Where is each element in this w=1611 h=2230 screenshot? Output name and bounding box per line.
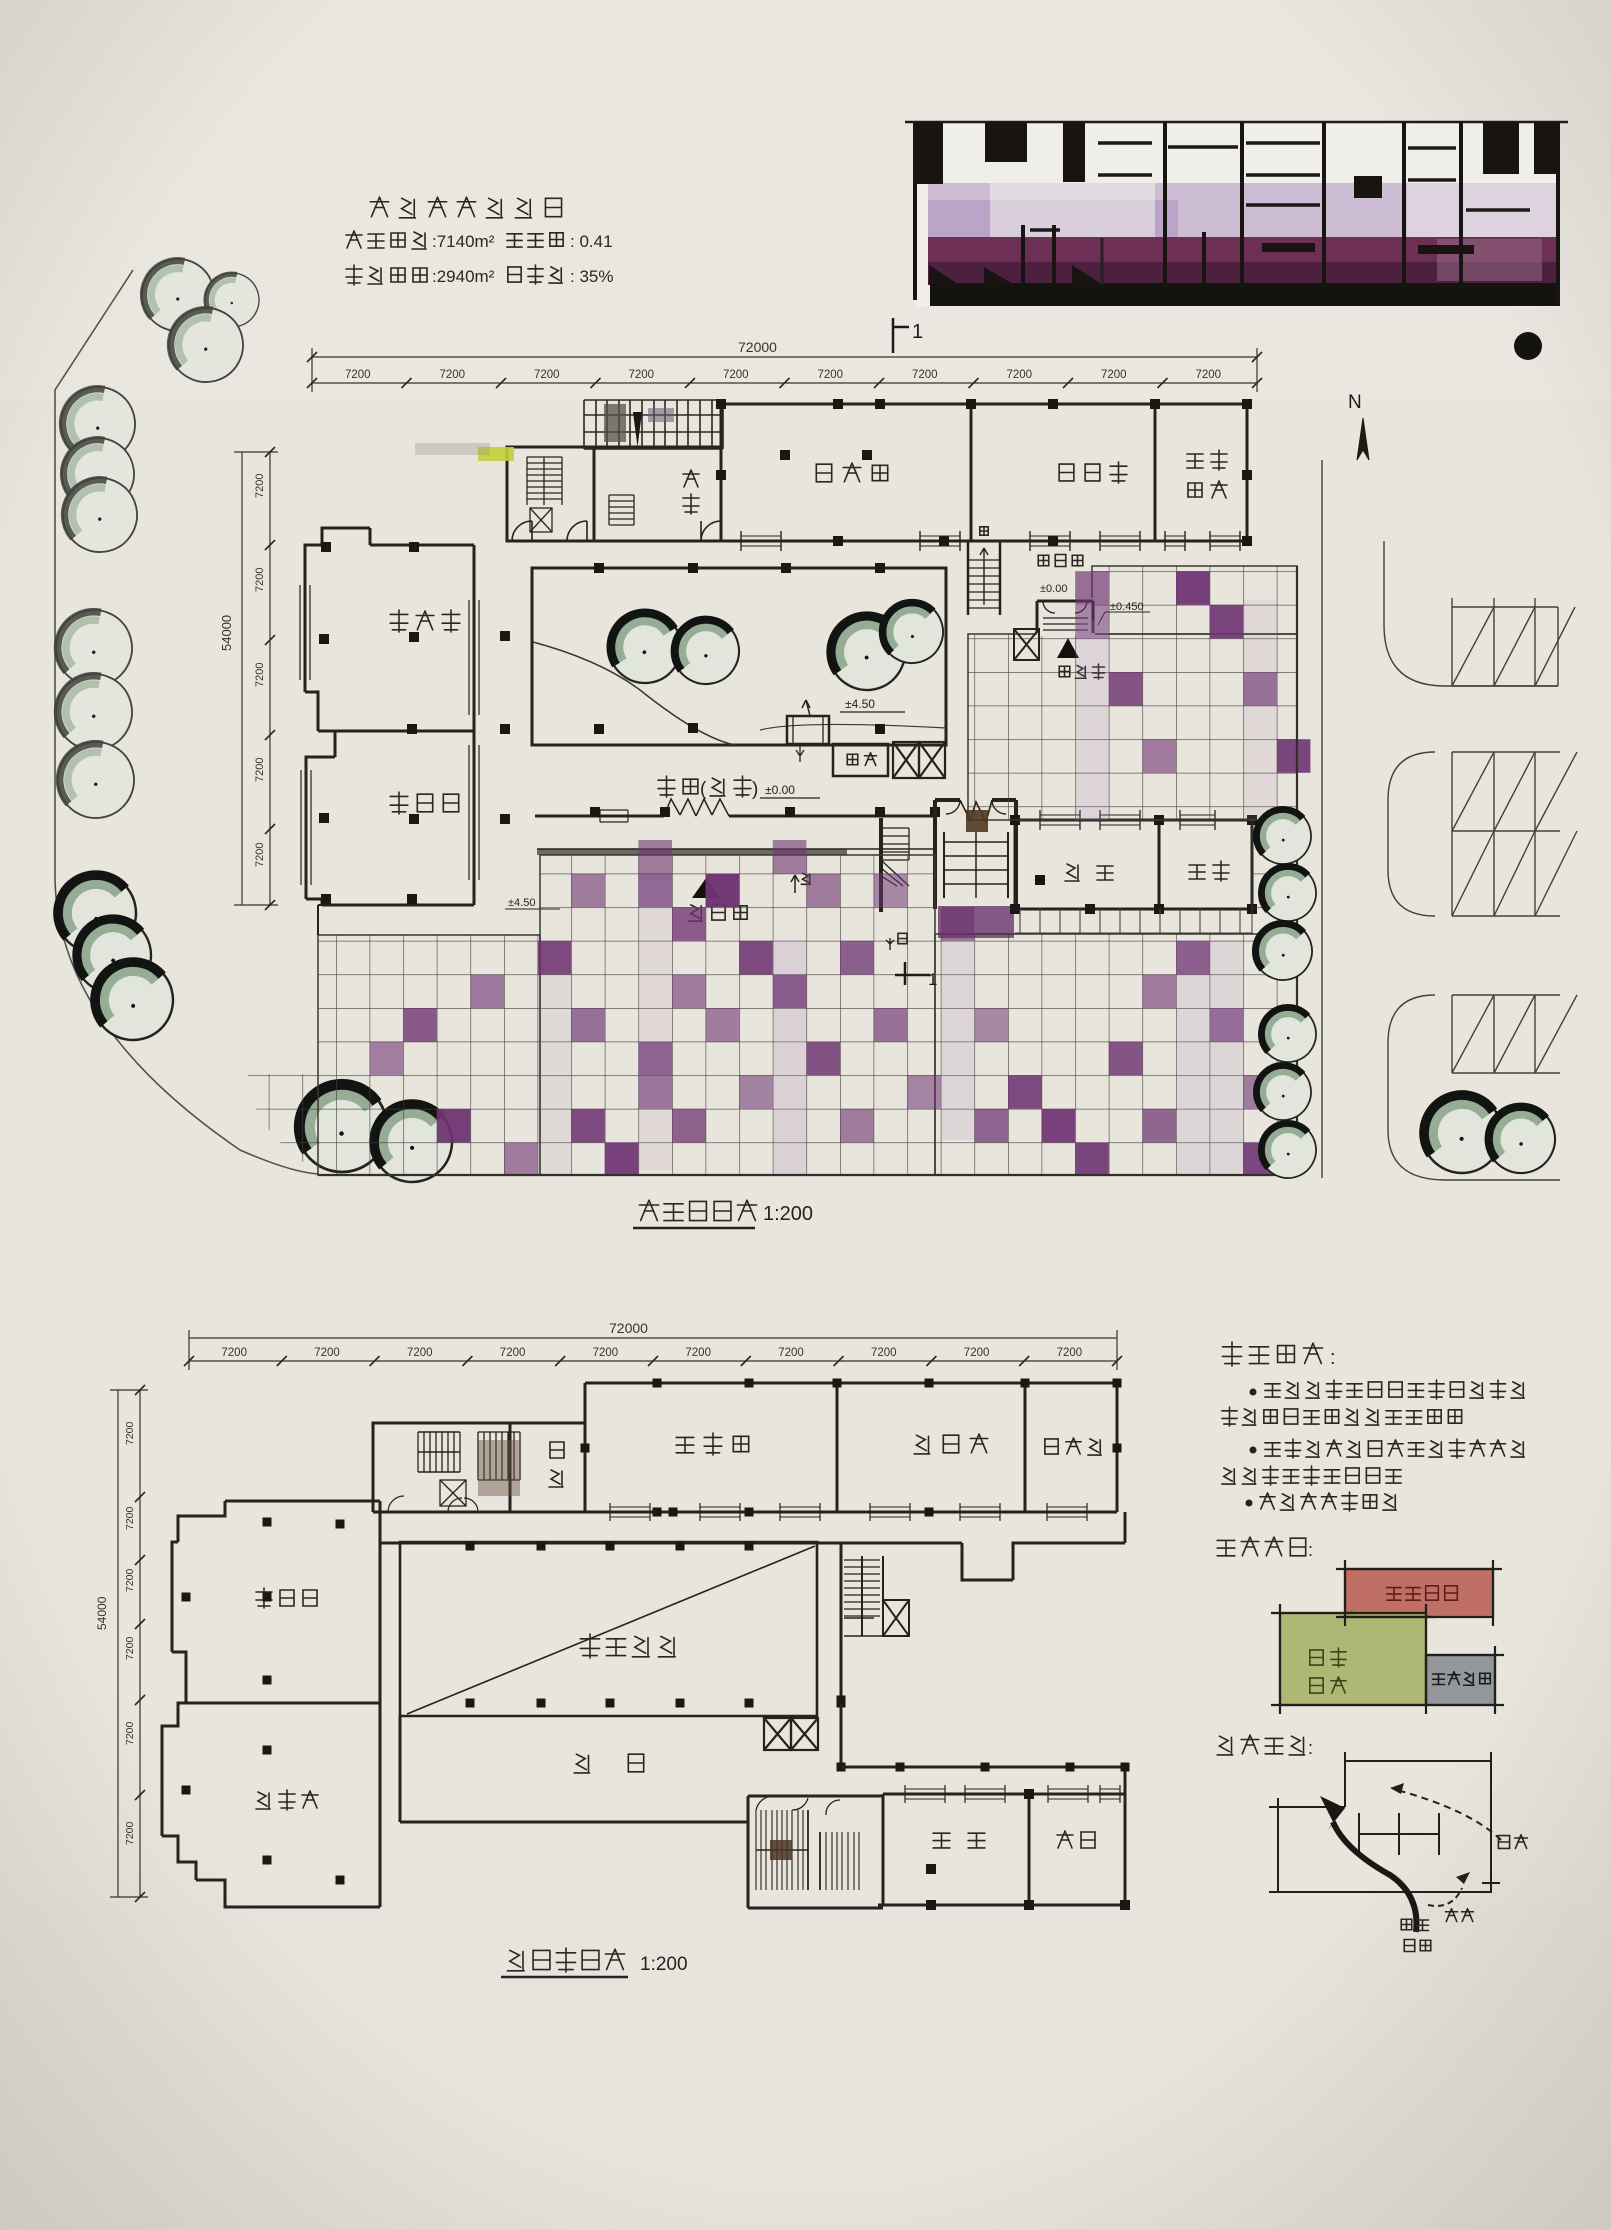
svg-text:7200: 7200 bbox=[1196, 369, 1222, 381]
svg-text:7200: 7200 bbox=[124, 1506, 136, 1530]
svg-text:7200: 7200 bbox=[124, 1821, 136, 1845]
svg-text:7200: 7200 bbox=[818, 369, 844, 381]
svg-text:7200: 7200 bbox=[1101, 369, 1127, 381]
svg-text:7200: 7200 bbox=[254, 843, 266, 867]
svg-text:7200: 7200 bbox=[685, 1347, 711, 1359]
svg-text:7200: 7200 bbox=[440, 369, 466, 381]
svg-text:54000: 54000 bbox=[219, 615, 234, 651]
svg-text:7200: 7200 bbox=[124, 1421, 136, 1445]
svg-text:54000: 54000 bbox=[95, 1596, 109, 1630]
svg-text:±4.50: ±4.50 bbox=[845, 697, 875, 711]
svg-text:1:200: 1:200 bbox=[763, 1203, 813, 1225]
svg-text:72000: 72000 bbox=[738, 339, 777, 355]
svg-text:7200: 7200 bbox=[1057, 1347, 1083, 1359]
svg-text:1:200: 1:200 bbox=[640, 1954, 688, 1975]
svg-text:7200: 7200 bbox=[314, 1347, 340, 1359]
svg-text:: 0.41: : 0.41 bbox=[570, 232, 613, 251]
svg-text:: 35%: : 35% bbox=[570, 267, 613, 286]
svg-text:7200: 7200 bbox=[593, 1347, 619, 1359]
svg-text:7200: 7200 bbox=[254, 663, 266, 687]
svg-text::: : bbox=[1308, 1738, 1313, 1758]
svg-text:7200: 7200 bbox=[254, 568, 266, 592]
svg-text:7200: 7200 bbox=[254, 758, 266, 782]
svg-text:7200: 7200 bbox=[345, 369, 371, 381]
svg-text:1: 1 bbox=[928, 970, 937, 989]
svg-text::: : bbox=[1308, 1540, 1313, 1560]
svg-text:7200: 7200 bbox=[964, 1347, 990, 1359]
svg-text::2940m²: :2940m² bbox=[432, 267, 495, 286]
svg-text:1: 1 bbox=[912, 321, 923, 343]
svg-text:7200: 7200 bbox=[534, 369, 560, 381]
svg-text:7200: 7200 bbox=[1007, 369, 1033, 381]
svg-text:7200: 7200 bbox=[723, 369, 749, 381]
svg-text:±0.00: ±0.00 bbox=[765, 783, 795, 797]
svg-text:±0.450: ±0.450 bbox=[1110, 601, 1144, 613]
svg-text:±0.00: ±0.00 bbox=[1040, 583, 1067, 595]
svg-text:7200: 7200 bbox=[221, 1347, 247, 1359]
svg-text::7140m²: :7140m² bbox=[432, 232, 495, 251]
svg-text::: : bbox=[1330, 1347, 1336, 1369]
svg-text:): ) bbox=[752, 779, 758, 800]
svg-text:N: N bbox=[1348, 392, 1362, 413]
svg-text:7200: 7200 bbox=[912, 369, 938, 381]
svg-text:7200: 7200 bbox=[124, 1721, 136, 1745]
svg-text:±4.50: ±4.50 bbox=[508, 897, 535, 909]
svg-text:7200: 7200 bbox=[124, 1568, 136, 1592]
svg-text:7200: 7200 bbox=[778, 1347, 804, 1359]
svg-text:72000: 72000 bbox=[609, 1320, 648, 1336]
svg-text:7200: 7200 bbox=[500, 1347, 526, 1359]
svg-text:7200: 7200 bbox=[254, 474, 266, 498]
svg-text:7200: 7200 bbox=[629, 369, 655, 381]
svg-text:7200: 7200 bbox=[124, 1636, 136, 1660]
svg-text:7200: 7200 bbox=[407, 1347, 433, 1359]
svg-text:7200: 7200 bbox=[871, 1347, 897, 1359]
svg-text:(: ( bbox=[700, 779, 707, 800]
